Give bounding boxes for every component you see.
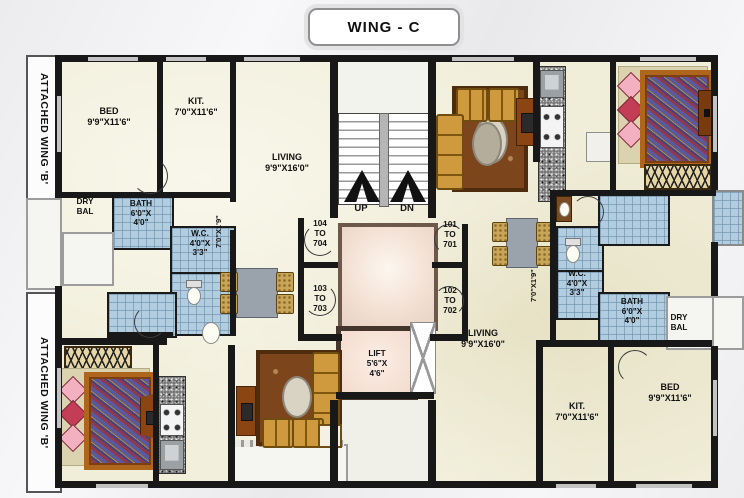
dresser-knob [704, 109, 710, 117]
tv-unit-103 [236, 386, 256, 436]
sofa-single-103a [262, 418, 294, 448]
label-living-102: LIVING 9'9"X16'0" [438, 328, 528, 349]
wall [230, 230, 236, 334]
sofa-three-seat-101 [436, 114, 464, 190]
wall [550, 190, 716, 196]
label-kit-104: KIT. 7'0"X11'6" [158, 96, 234, 117]
wall [298, 334, 342, 341]
stair-landing [338, 62, 428, 115]
toilet-101 [566, 245, 580, 263]
wall [336, 392, 434, 399]
wall [432, 262, 462, 268]
dining-table-left [236, 268, 278, 318]
toilet-103 [187, 287, 201, 305]
wall [330, 400, 338, 481]
window [166, 57, 206, 61]
window [244, 57, 300, 61]
lift: LIFT 5'6"X 4'6" [336, 326, 418, 402]
sink-103 [160, 440, 184, 470]
wing-b-bath-protrusion [712, 190, 744, 246]
label-door-102: 102 TO 702 [430, 286, 470, 315]
window [96, 484, 148, 488]
label-drybal-102: DRY BAL [656, 313, 702, 332]
wall [302, 262, 338, 268]
label-bed-104: BED 9'9"X11'6" [64, 106, 154, 127]
balcony-left-protrusion [26, 198, 62, 290]
balcony-right-protrusion [712, 296, 744, 350]
wall [536, 340, 712, 347]
label-up: UP [340, 203, 382, 214]
dining-chair [492, 246, 508, 266]
duct-shaft [410, 322, 436, 394]
wall [330, 62, 338, 218]
door-arc-bed-103 [134, 306, 166, 338]
wall [55, 55, 718, 62]
wall [428, 400, 436, 481]
wash-basin-101 [556, 196, 572, 222]
label-passage-104: 7'0"X1'9" [214, 196, 230, 268]
center-table-101 [472, 122, 502, 166]
window [88, 57, 138, 61]
window [452, 57, 514, 61]
dining-chair [276, 272, 294, 292]
bath-101 [598, 194, 670, 246]
label-passage-102: 7'0"X1'9" [529, 250, 545, 322]
wc-101 [556, 226, 604, 274]
label-bed-102: BED 9'9"X11'6" [626, 382, 714, 403]
door-arc-bath-101 [572, 196, 604, 228]
wash-basin-103 [202, 322, 220, 344]
sink-101 [540, 70, 564, 98]
dry-balcony-104 [62, 232, 114, 286]
window [57, 368, 61, 428]
label-bath-104: BATH 6'0"X 4'0" [112, 199, 170, 228]
door-arc-bed-104 [132, 158, 168, 194]
lift-lobby [338, 223, 438, 331]
wall [428, 62, 436, 218]
wall [230, 62, 236, 202]
window [556, 484, 596, 488]
wall [533, 62, 540, 162]
label-dn: DN [386, 203, 428, 214]
label-door-104: 104 TO 704 [300, 219, 340, 248]
label-door-103: 103 TO 703 [300, 284, 340, 313]
wardrobe-101 [644, 164, 712, 190]
window [57, 96, 61, 152]
dining-chair [276, 294, 294, 314]
wall [228, 345, 235, 481]
stove-101 [540, 106, 564, 148]
wall [711, 242, 718, 296]
door-arc-bed-102 [618, 350, 652, 384]
below-lift-area [338, 400, 428, 481]
window [636, 484, 692, 488]
wall [55, 481, 718, 488]
stair-divider [379, 113, 389, 207]
wall [550, 196, 556, 340]
label-kit-102: KIT. 7'0"X11'6" [542, 401, 612, 422]
fridge-101 [586, 132, 612, 162]
label-living-104: LIVING 9'9"X16'0" [240, 152, 334, 173]
stove-103 [160, 404, 184, 436]
wall [153, 345, 159, 481]
wall [610, 62, 616, 195]
carpet-medallion [282, 376, 312, 418]
wing-title: WING - C [348, 19, 421, 36]
lift-label: LIFT 5'6"X 4'6" [367, 349, 387, 378]
wing-title-box: WING - C [308, 8, 460, 46]
label-wc-102: W.C. 4'0"X 3'3" [553, 269, 601, 298]
dining-chair [492, 222, 508, 242]
floor-plan: WING - C ATTACHED WING 'B' ATTACHED WING… [0, 0, 744, 498]
window [713, 96, 717, 152]
label-drybal-104: DRY BAL [62, 197, 108, 216]
window [640, 57, 696, 61]
wardrobe-103 [64, 346, 132, 370]
label-door-101: 101 TO 701 [430, 220, 470, 249]
wall [55, 338, 167, 345]
